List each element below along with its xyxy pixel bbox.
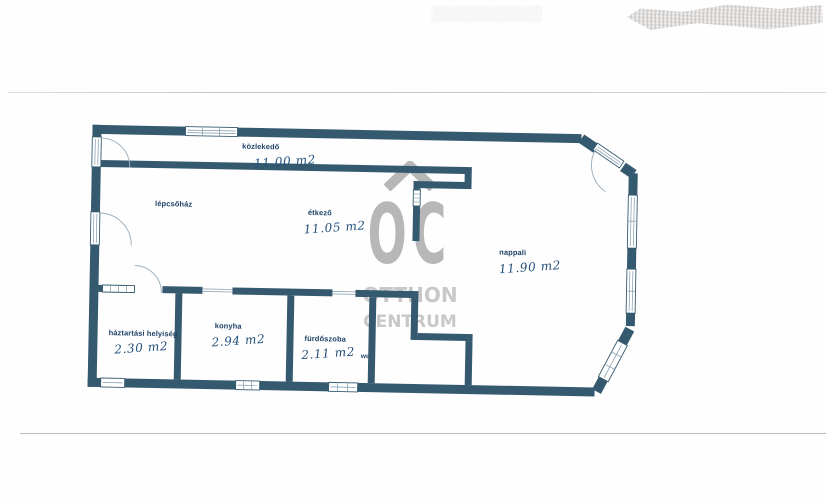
window-icon: [102, 285, 134, 293]
scan-noise-smudge: [627, 3, 823, 32]
room-area: 2.94 m2: [211, 332, 266, 350]
door-opening-icon: [202, 289, 232, 292]
room-area: 11.90 m2: [499, 258, 562, 276]
floorplan-drawing: [75, 113, 650, 414]
door-frame-icon: [92, 137, 102, 167]
room-label-konyha: konyha 2.94 m2: [214, 321, 265, 350]
room-name: nappali: [499, 248, 561, 258]
room-label-etkezo: étkező 11.05 m2: [308, 208, 367, 237]
window-icon: [329, 382, 358, 392]
window-icon: [413, 190, 420, 206]
page-rule-bottom: [20, 433, 826, 434]
room-label-haztartasi: háztartási helyiség 2.30 m2: [108, 328, 178, 357]
door-arc-icon: [134, 266, 162, 294]
room-area: 11.00 m2: [254, 152, 317, 170]
window-icon: [627, 195, 637, 248]
door-opening-icon: [332, 291, 355, 294]
scan-faint-marks: [432, 6, 542, 22]
window-icon: [236, 381, 260, 390]
chamfer-walls: [577, 139, 635, 392]
room-area: 2.30 m2: [114, 339, 169, 357]
room-name: háztartási helyiség: [109, 328, 178, 338]
room-name: lépcsőház: [155, 199, 192, 209]
room-name: közlekedő: [242, 142, 316, 152]
floorplan: közlekedő 11.00 m2 lépcsőház étkező 11.0…: [75, 113, 650, 414]
room-area: 11.05 m2: [303, 218, 366, 236]
window-icon: [598, 340, 627, 381]
door-frame-icon: [90, 212, 100, 245]
room-label-nappali: nappali 11.90 m2: [499, 248, 562, 277]
room-label-kozlekedo: közlekedő 11.00 m2: [242, 142, 317, 171]
wc-label: wc: [361, 353, 370, 360]
window-icon: [101, 378, 125, 387]
room-label-lepcsohaz: lépcsőház: [155, 199, 192, 209]
room-area: 2.11 m2: [301, 345, 356, 363]
room-name: fürdőszoba: [304, 334, 370, 344]
scanned-floorplan-page: OC OTTHON CENTRUM: [0, 0, 826, 500]
room-label-furdoszoba: fürdőszoba 2.11 m2wc: [304, 334, 370, 363]
window-icon: [185, 127, 237, 137]
room-name: étkező: [308, 208, 366, 218]
room-name: konyha: [215, 321, 266, 331]
page-rule-top: [8, 92, 826, 93]
door-arc-icon: [99, 213, 132, 246]
window-icon: [626, 269, 636, 313]
